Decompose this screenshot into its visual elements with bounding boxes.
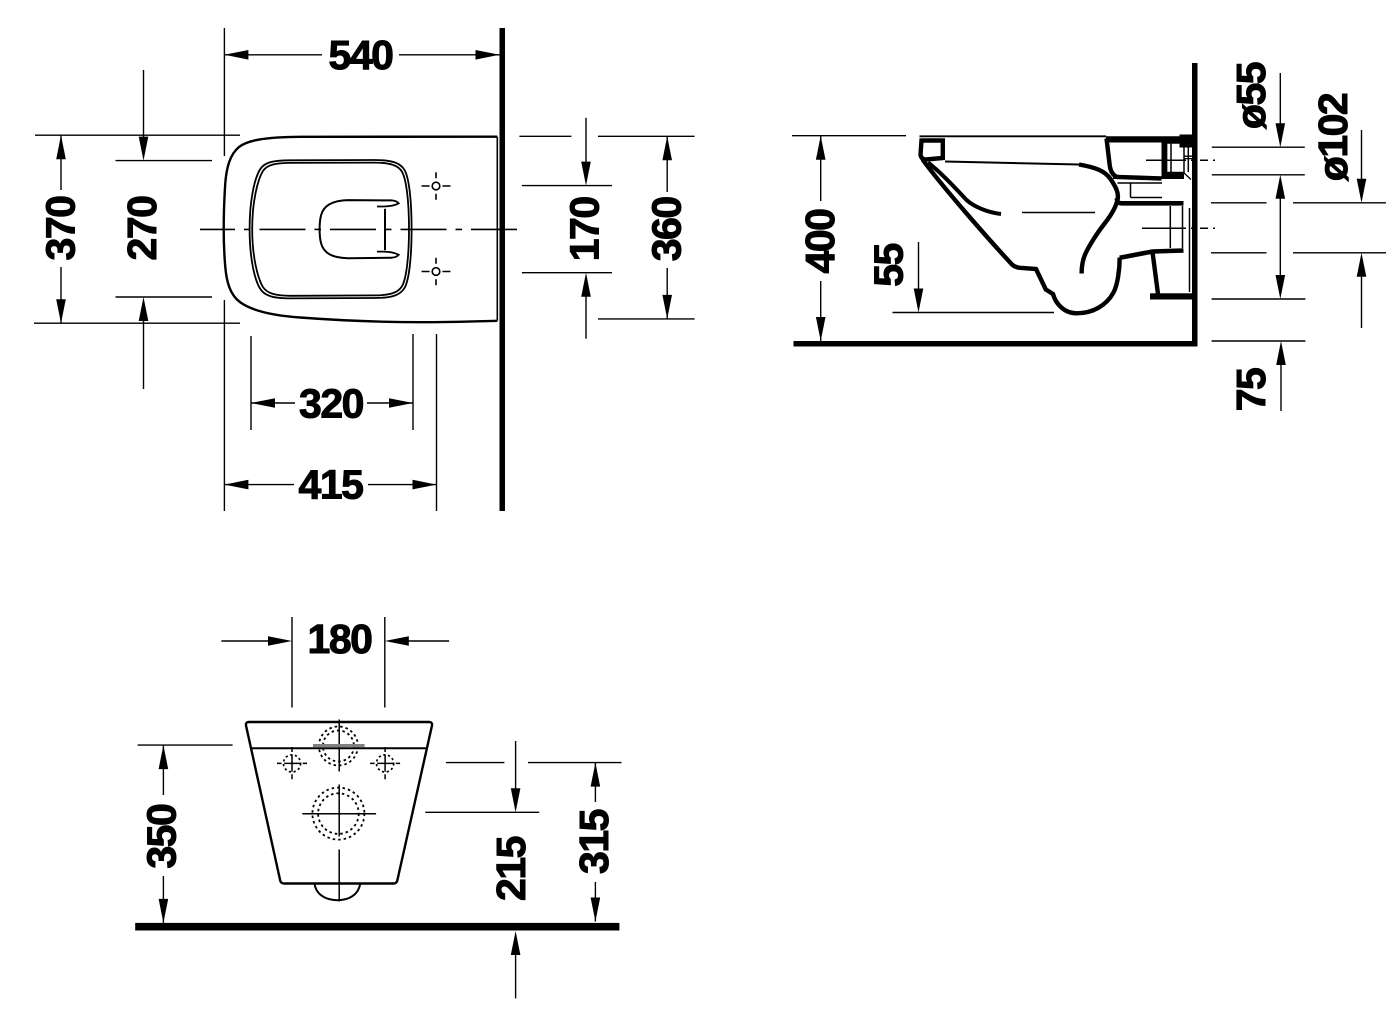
svg-text:180: 180 — [308, 616, 373, 662]
svg-text:350: 350 — [139, 804, 185, 869]
svg-text:400: 400 — [797, 209, 843, 274]
svg-text:ø102: ø102 — [1310, 93, 1356, 181]
svg-text:370: 370 — [38, 196, 84, 261]
svg-text:540: 540 — [329, 32, 394, 78]
svg-text:270: 270 — [119, 196, 165, 261]
svg-text:170: 170 — [562, 197, 608, 262]
svg-text:215: 215 — [488, 836, 534, 901]
svg-text:415: 415 — [299, 462, 364, 508]
svg-text:ø55: ø55 — [1228, 62, 1274, 129]
svg-text:55: 55 — [866, 244, 912, 287]
svg-text:75: 75 — [1228, 368, 1274, 411]
svg-text:360: 360 — [644, 197, 690, 262]
svg-text:315: 315 — [571, 809, 617, 874]
svg-text:320: 320 — [299, 381, 364, 427]
